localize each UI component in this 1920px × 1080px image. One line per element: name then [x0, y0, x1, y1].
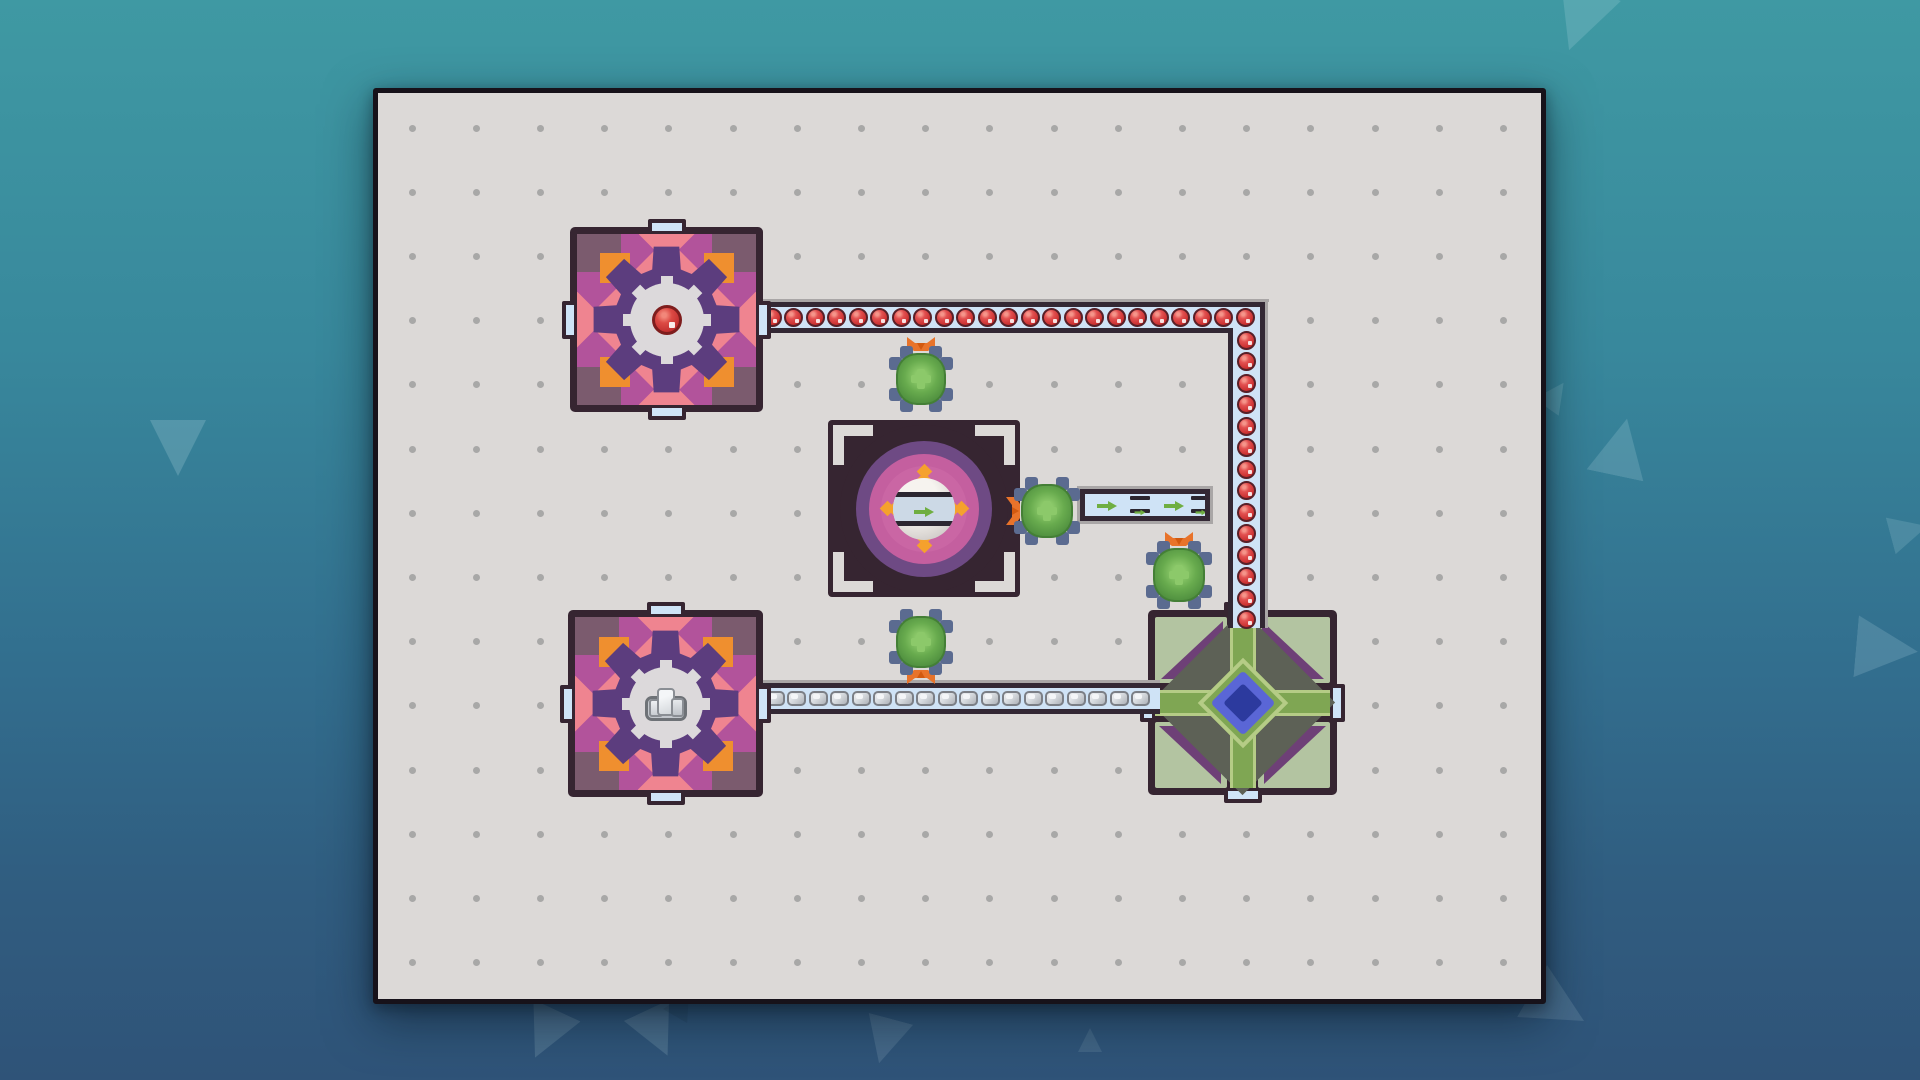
- bug-body: [1153, 548, 1205, 602]
- bug-body: [1021, 484, 1073, 538]
- entities-layer: [0, 0, 1920, 1080]
- red-orb-item: [1237, 374, 1256, 393]
- red-orb-item: [1236, 308, 1255, 327]
- assembler-corner-notch: [833, 425, 844, 465]
- port-top: [648, 219, 686, 235]
- red-orb-item: [1107, 308, 1126, 327]
- bug-east[interactable]: [995, 458, 1099, 564]
- assembler-product-ball: [893, 478, 955, 540]
- red-orb-item: [1237, 481, 1256, 500]
- port-right: [755, 685, 771, 723]
- conveyor-part-item: [1191, 496, 1210, 513]
- extractor-red[interactable]: [570, 227, 763, 412]
- red-orb-item: [1237, 438, 1256, 457]
- green-arrow-icon: [1163, 500, 1185, 512]
- red-orb-item: [870, 308, 889, 327]
- gear-tooth: [660, 660, 672, 672]
- resource-stone: [644, 686, 688, 722]
- red-orb-item: [1064, 308, 1083, 327]
- red-orb-item: [1237, 417, 1256, 436]
- red-orb-item: [1237, 395, 1256, 414]
- red-orb-item: [1237, 460, 1256, 479]
- red-orb-item: [1237, 352, 1256, 371]
- port-top: [647, 602, 685, 618]
- stone-item: [787, 691, 806, 706]
- red-orb-item: [1237, 589, 1256, 608]
- conveyor-part-bar: [1191, 496, 1210, 500]
- stone-item: [1045, 691, 1064, 706]
- red-orb-item: [1237, 524, 1256, 543]
- red-orb-item: [1150, 308, 1169, 327]
- red-orb-item: [849, 308, 868, 327]
- assembler[interactable]: [828, 420, 1020, 597]
- stone-block-right: [671, 698, 684, 717]
- stone-item: [830, 691, 849, 706]
- port-bottom: [648, 404, 686, 420]
- bug-body: [896, 616, 946, 668]
- red-orb-item: [1237, 503, 1256, 522]
- assembler-corner-notch: [833, 552, 844, 592]
- red-orb-item: [1128, 308, 1147, 327]
- product-belt-arrow: [913, 503, 935, 515]
- green-arrow-icon: [1195, 509, 1207, 516]
- red-orb-item: [892, 308, 911, 327]
- red-orb-item: [913, 308, 932, 327]
- port-bottom: [647, 789, 685, 805]
- resource-red-orb: [652, 305, 682, 335]
- stone-item: [1088, 691, 1107, 706]
- gear-tooth: [660, 736, 672, 748]
- product-belt-bar: [893, 521, 955, 526]
- red-orb-item: [1021, 308, 1040, 327]
- red-orb-item: [1042, 308, 1061, 327]
- bug-body: [896, 353, 946, 405]
- belt-direction-arrow: [1096, 497, 1118, 509]
- port-right: [755, 301, 771, 339]
- bug-north[interactable]: [870, 327, 972, 431]
- red-orb-item: [1237, 331, 1256, 350]
- red-orb-item: [1171, 308, 1190, 327]
- stone-item: [1131, 691, 1150, 706]
- stone-item: [852, 691, 871, 706]
- gear-tooth: [698, 698, 710, 710]
- extractor-stone[interactable]: [568, 610, 763, 797]
- stone-item: [1002, 691, 1021, 706]
- stone-item: [1067, 691, 1086, 706]
- stone-item: [1110, 691, 1129, 706]
- belt-red-vertical-shadow: [1265, 299, 1268, 628]
- stone-item: [981, 691, 1000, 706]
- red-orb-item: [978, 308, 997, 327]
- red-orb-item: [827, 308, 846, 327]
- red-orb-item: [1237, 610, 1256, 629]
- belt-direction-arrow: [1163, 497, 1185, 509]
- red-orb-item: [806, 308, 825, 327]
- green-arrow-icon: [1096, 500, 1118, 512]
- gear-tooth: [699, 314, 711, 326]
- port-left: [562, 301, 578, 339]
- belt-output[interactable]: [1080, 489, 1210, 521]
- gear-tooth: [661, 276, 673, 288]
- gear-tooth: [622, 698, 634, 710]
- green-arrow-icon: [1134, 509, 1146, 516]
- red-orb-item: [1237, 567, 1256, 586]
- green-arrow-icon: [913, 506, 935, 518]
- red-orb-item: [1214, 308, 1233, 327]
- red-orb-item: [956, 308, 975, 327]
- red-orb-item: [1085, 308, 1104, 327]
- bug-south[interactable]: [870, 590, 972, 694]
- port-left: [560, 685, 576, 723]
- conveyor-part-arrow: [1195, 501, 1207, 508]
- red-orb-item: [935, 308, 954, 327]
- game-viewport: [0, 0, 1920, 1080]
- bug-hub[interactable]: [1127, 522, 1231, 628]
- stone-item: [1024, 691, 1043, 706]
- red-orb-item: [1193, 308, 1212, 327]
- red-orb-item: [784, 308, 803, 327]
- conveyor-part-arrow: [1134, 501, 1146, 508]
- conveyor-part-bar: [1130, 496, 1150, 500]
- hub[interactable]: [1148, 610, 1337, 795]
- conveyor-part-item: [1130, 496, 1150, 513]
- gear-tooth: [623, 314, 635, 326]
- red-orb-item: [999, 308, 1018, 327]
- gear-tooth: [661, 352, 673, 364]
- stone-item: [809, 691, 828, 706]
- red-orb-item: [1237, 546, 1256, 565]
